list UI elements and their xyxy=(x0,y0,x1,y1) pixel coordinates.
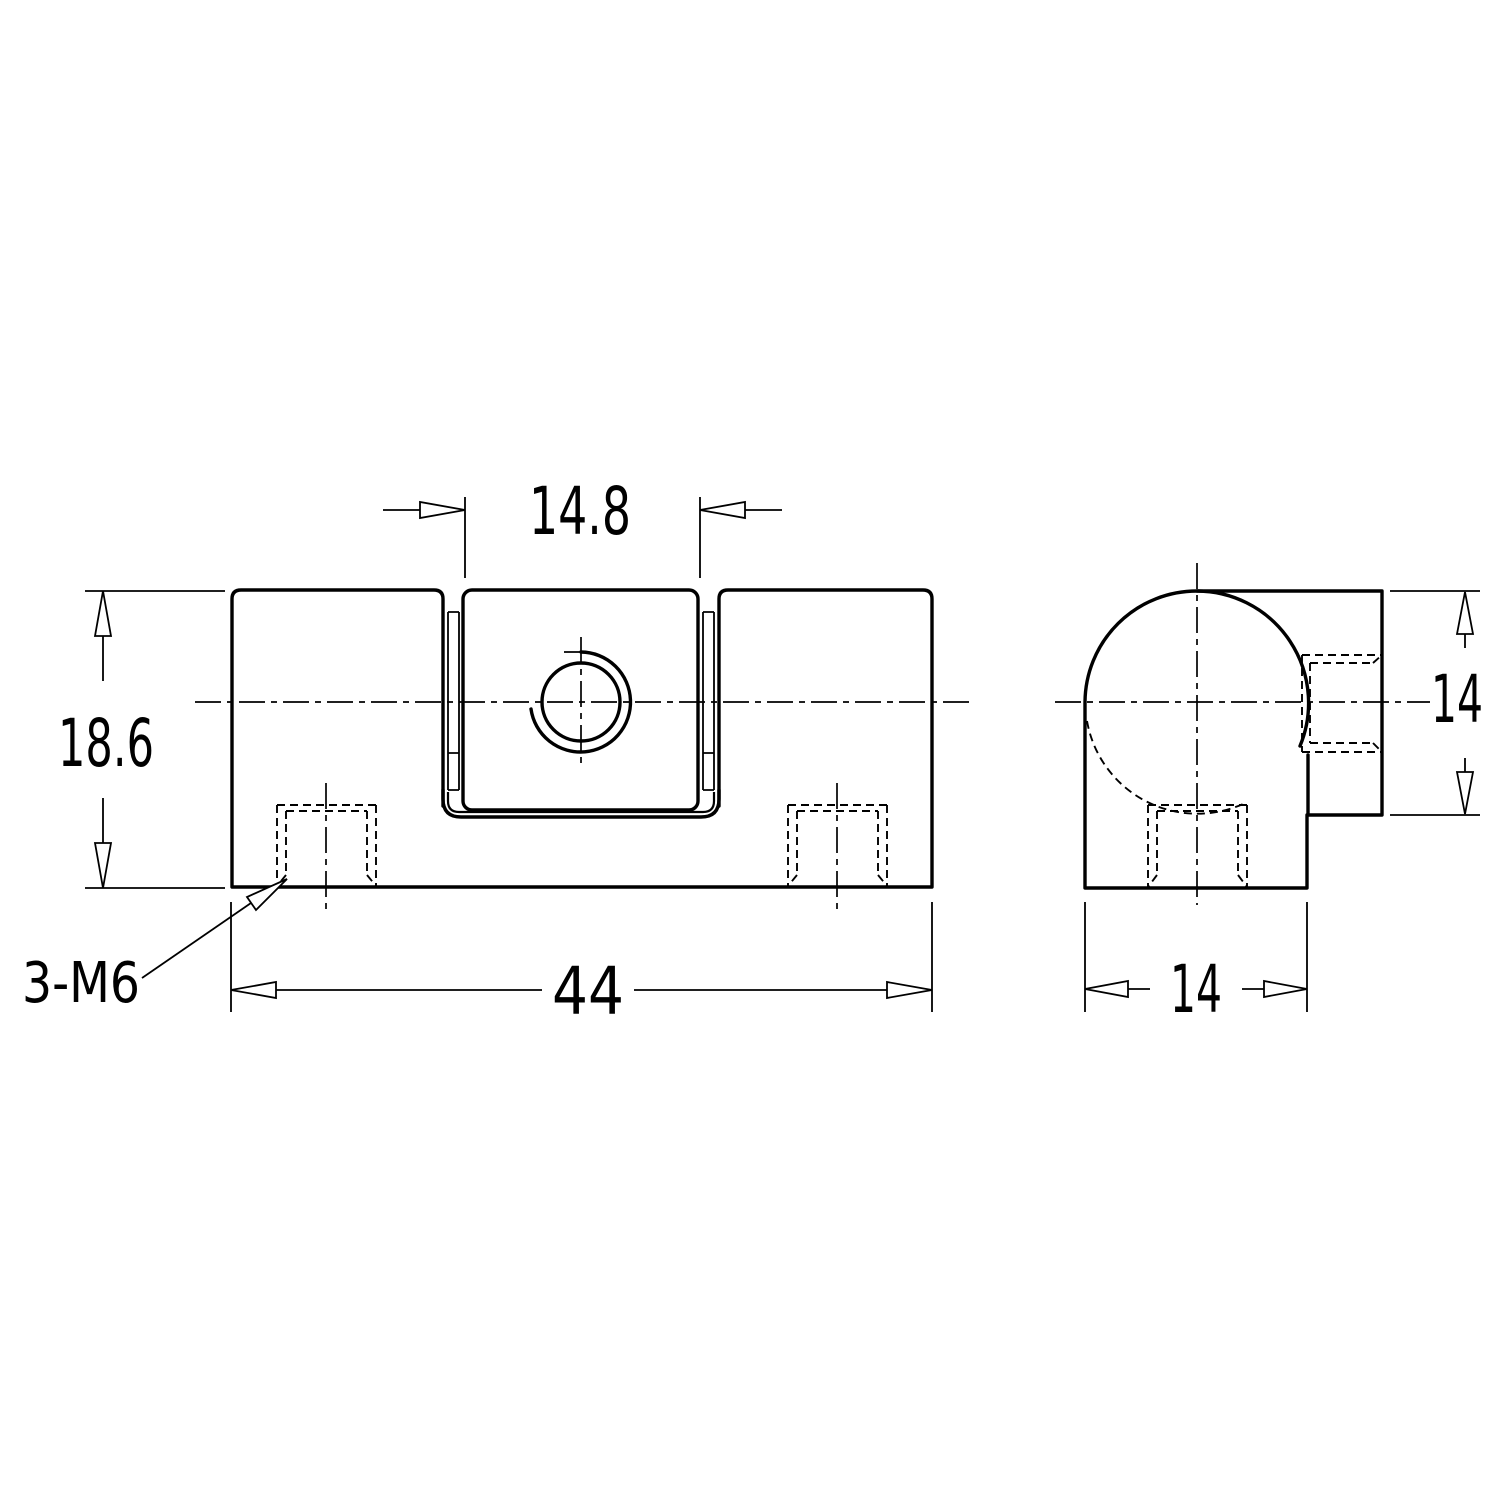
cad-drawing-canvas: 14.8 18.6 44 14 14 3-M6 xyxy=(0,0,1500,1500)
drawing-background xyxy=(0,0,1500,1500)
dim-text-side-width: 14 xyxy=(1170,951,1222,1028)
dim-text-body-height: 18.6 xyxy=(58,705,154,782)
dim-text-side-height: 14 xyxy=(1431,661,1483,738)
technical-drawing-page: 14.8 18.6 44 14 14 3-M6 xyxy=(0,0,1500,1500)
dim-text-body-length: 44 xyxy=(552,953,624,1030)
dim-text-nut-width: 14.8 xyxy=(529,473,631,550)
thread-note-text: 3-M6 xyxy=(22,951,140,1016)
